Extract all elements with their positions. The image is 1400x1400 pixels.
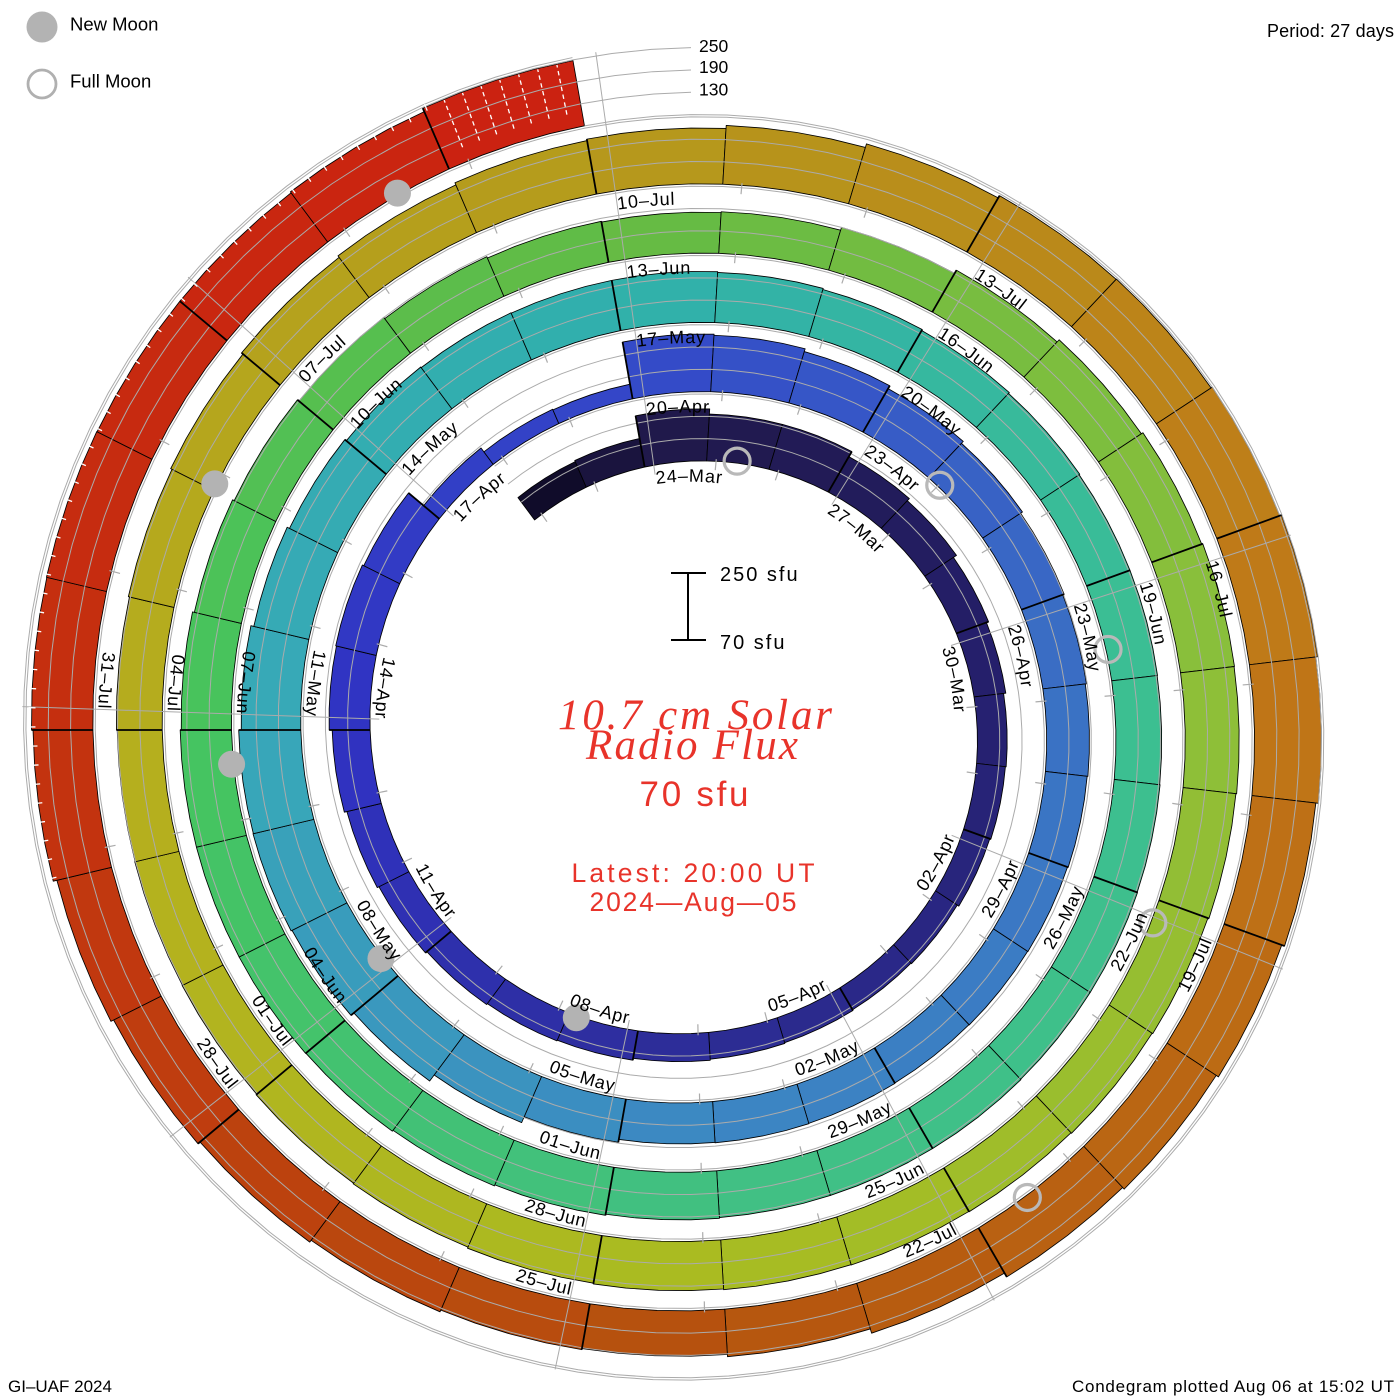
- svg-text:190: 190: [699, 57, 728, 77]
- svg-text:GI–UAF 2024: GI–UAF 2024: [8, 1377, 112, 1396]
- svg-text:250: 250: [699, 36, 728, 56]
- svg-text:250 sfu: 250 sfu: [720, 564, 800, 586]
- svg-text:Latest: 20:00 UT: Latest: 20:00 UT: [572, 858, 815, 888]
- svg-text:New Moon: New Moon: [70, 14, 158, 35]
- svg-text:70 sfu: 70 sfu: [720, 632, 786, 654]
- svg-text:Radio Flux: Radio Flux: [585, 722, 798, 769]
- svg-text:24–Mar: 24–Mar: [655, 466, 725, 488]
- svg-text:20–Apr: 20–Apr: [645, 396, 711, 419]
- svg-text:Full Moon: Full Moon: [70, 71, 151, 92]
- svg-text:2024—Aug—05: 2024—Aug—05: [590, 887, 797, 917]
- svg-text:Period: 27 days: Period: 27 days: [1267, 21, 1394, 41]
- svg-text:Condegram plotted Aug 06 at 15: Condegram plotted Aug 06 at 15:02 UT: [1072, 1377, 1394, 1396]
- svg-text:130: 130: [699, 80, 728, 100]
